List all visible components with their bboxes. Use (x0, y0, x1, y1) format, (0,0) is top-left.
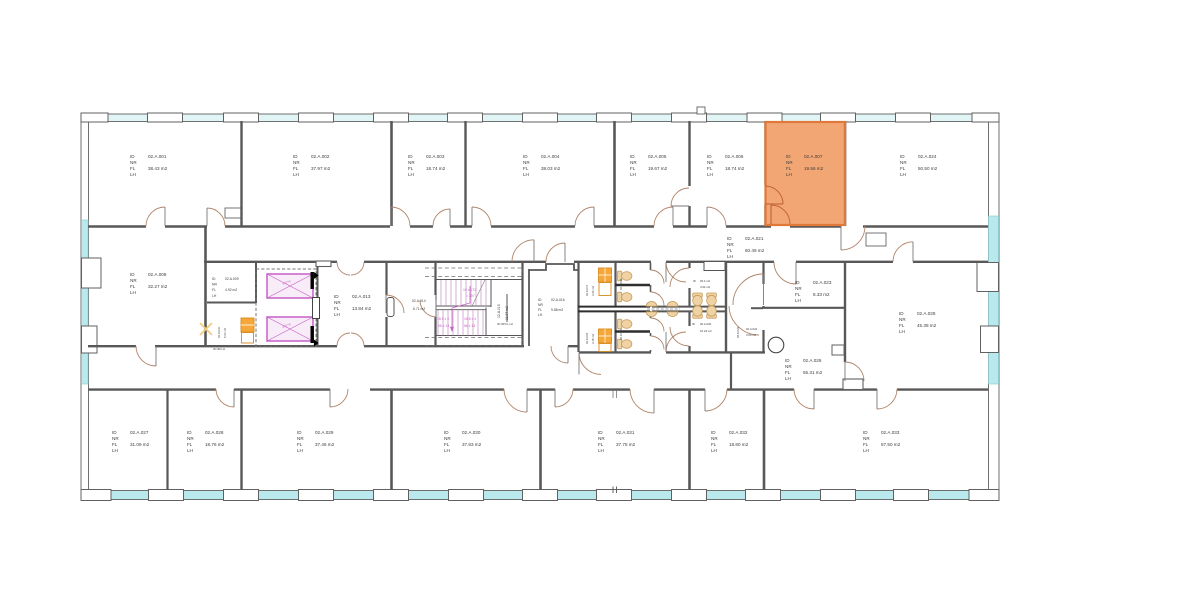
svg-text:19.67 m2: 19.67 m2 (648, 166, 668, 171)
svg-text:55.31 m2: 55.31 m2 (803, 370, 823, 375)
svg-text:03.4 m2: 03.4 m2 (700, 279, 711, 283)
svg-text:02.A.006: 02.A.006 (725, 154, 744, 159)
svg-text:NR: NR (786, 160, 793, 165)
svg-text:NR: NR (187, 436, 194, 441)
svg-text:02.A.026: 02.A.026 (803, 358, 822, 363)
svg-text:FL: FL (130, 166, 136, 171)
svg-text:18.76 m2: 18.76 m2 (205, 442, 225, 447)
svg-text:02.A.023: 02.A.023 (813, 280, 832, 285)
svg-text:NR: NR (112, 436, 119, 441)
svg-text:LH: LH (900, 172, 906, 177)
svg-text:FL: FL (408, 166, 414, 171)
svg-text:NR: NR (900, 160, 907, 165)
svg-text:ID: ID (297, 430, 302, 435)
svg-text:NR: NR (630, 160, 637, 165)
svg-text:18.5 x 4: 18.5 x 4 (437, 317, 449, 321)
svg-text:FL: FL (899, 323, 905, 328)
svg-text:FL: FL (130, 284, 136, 289)
svg-text:ID: ID (786, 154, 791, 159)
svg-text:LH: LH (444, 448, 450, 453)
svg-text:ID: ID (863, 430, 868, 435)
svg-text:LH: LH (598, 448, 604, 453)
svg-text:NR: NR (130, 278, 137, 283)
svg-text:02.A.007: 02.A.007 (804, 154, 823, 159)
svg-text:LH: LH (187, 448, 193, 453)
svg-text:10.23 m2: 10.23 m2 (700, 329, 712, 333)
svg-text:ID: ID (630, 154, 635, 159)
svg-text:ID: ID (900, 154, 905, 159)
svg-text:02.A.024: 02.A.024 (918, 154, 937, 159)
svg-text:ID: ID (523, 154, 528, 159)
svg-text:FL: FL (707, 166, 713, 171)
svg-text:02.A.005: 02.A.005 (648, 154, 667, 159)
svg-text:50.50 m2: 50.50 m2 (918, 166, 938, 171)
svg-text:LH: LH (408, 172, 414, 177)
svg-text:NR: NR (899, 317, 906, 322)
svg-text:ID: ID (711, 430, 716, 435)
svg-text:37.83 m2: 37.83 m2 (462, 442, 482, 447)
svg-text:02.A.022: 02.A.022 (736, 326, 740, 338)
svg-text:FL: FL (863, 442, 869, 447)
svg-text:ID: ID (899, 311, 904, 316)
svg-text:NR: NR (711, 436, 718, 441)
svg-text:LH: LH (727, 254, 733, 259)
svg-text:02.A.014: 02.A.014 (412, 299, 426, 303)
svg-text:LH: LH (863, 448, 869, 453)
svg-text:LH: LH (297, 448, 303, 453)
svg-text:ID: ID (727, 236, 732, 241)
svg-text:ID: ID (538, 298, 542, 302)
svg-text:ID: ID (130, 272, 135, 277)
svg-text:02.A.022: 02.A.022 (746, 327, 758, 331)
svg-text:ID: ID (130, 154, 135, 159)
svg-text:ID: ID (693, 279, 696, 283)
svg-text:18.74 m2: 18.74 m2 (426, 166, 446, 171)
svg-text:FL: FL (785, 370, 791, 375)
svg-text:FL: FL (444, 442, 450, 447)
svg-text:LH: LH (786, 172, 792, 177)
svg-text:LH: LH (293, 172, 299, 177)
svg-text:18.5 x 4: 18.5 x 4 (464, 317, 476, 321)
svg-text:02.A.001: 02.A.001 (148, 154, 167, 159)
svg-text:ID: ID (408, 154, 413, 159)
svg-text:18.74 m2: 18.74 m2 (725, 166, 745, 171)
svg-text:4.92 m2: 4.92 m2 (700, 285, 711, 289)
svg-text:NR: NR (707, 160, 714, 165)
svg-text:02.A.016: 02.A.016 (551, 298, 565, 302)
svg-text:LH: LH (212, 294, 217, 298)
svg-text:02.A.015: 02.A.015 (497, 304, 501, 318)
svg-text:02.A.002: 02.A.002 (311, 154, 330, 159)
svg-text:02.A.004: 02.A.004 (541, 154, 560, 159)
svg-text:ID: ID (334, 294, 339, 299)
svg-text:3.34 m2: 3.34 m2 (591, 285, 595, 296)
svg-text:FL: FL (598, 442, 604, 447)
svg-text:NR: NR (863, 436, 870, 441)
svg-text:37.97 m2: 37.97 m2 (311, 166, 331, 171)
svg-text:57.50 m2: 57.50 m2 (881, 442, 901, 447)
svg-text:02.A.020: 02.A.020 (700, 322, 712, 326)
svg-text:37.75 m2: 37.75 m2 (616, 442, 636, 447)
svg-text:8.33 m2: 8.33 m2 (813, 292, 830, 297)
svg-text:LH: LH (707, 172, 713, 177)
svg-text:FL: FL (786, 166, 792, 171)
svg-text:FL: FL (297, 442, 303, 447)
svg-text:NR: NR (727, 242, 734, 247)
svg-text:32.27 m2: 32.27 m2 (148, 284, 168, 289)
svg-text:FL: FL (630, 166, 636, 171)
svg-text:60.49 m2: 60.49 m2 (745, 248, 765, 253)
svg-text:9.88 m2: 9.88 m2 (551, 308, 563, 312)
svg-text:NR: NR (334, 300, 341, 305)
svg-text:LH: LH (630, 172, 636, 177)
svg-text:FL: FL (900, 166, 906, 171)
svg-text:ID: ID (212, 277, 216, 281)
svg-text:10 x 172: 10 x 172 (463, 288, 476, 292)
svg-text:18.80 m2: 18.80 m2 (729, 442, 749, 447)
svg-text:02.A.018: 02.A.018 (619, 278, 623, 290)
svg-text:NR: NR (293, 160, 300, 165)
svg-text:02.A.009: 02.A.009 (225, 277, 239, 281)
svg-text:37.46 m2: 37.46 m2 (315, 442, 335, 447)
svg-text:FL: FL (212, 288, 216, 292)
svg-text:56 x 13: 56 x 13 (438, 324, 449, 328)
svg-text:ID: ID (692, 322, 695, 326)
svg-text:LH: LH (130, 290, 136, 295)
svg-text:02.A.033: 02.A.033 (881, 430, 900, 435)
svg-text:45.38 m2: 45.38 m2 (917, 323, 937, 328)
svg-text:02.A.028: 02.A.028 (917, 311, 936, 316)
svg-text:ID NR LH: ID NR LH (213, 347, 225, 351)
svg-text:FL: FL (187, 442, 193, 447)
svg-text:02.A.028: 02.A.028 (205, 430, 224, 435)
svg-text:FL: FL (795, 292, 801, 297)
svg-text:NR: NR (795, 286, 802, 291)
svg-text:FL: FL (523, 166, 529, 171)
svg-text:FL: FL (727, 248, 733, 253)
svg-text:NR: NR (785, 364, 792, 369)
svg-text:LH: LH (112, 448, 118, 453)
svg-text:LH: LH (899, 329, 905, 334)
svg-text:LH: LH (795, 298, 801, 303)
svg-text:02.A.003: 02.A.003 (426, 154, 445, 159)
svg-text:ID: ID (707, 154, 712, 159)
svg-text:LH: LH (538, 313, 543, 317)
svg-text:NR: NR (538, 303, 543, 307)
svg-text:38.43 m2: 38.43 m2 (148, 166, 168, 171)
svg-text:ID NR FL LH: ID NR FL LH (497, 322, 513, 326)
svg-text:31.09 m2: 31.09 m2 (130, 442, 150, 447)
svg-text:LH: LH (523, 172, 529, 177)
svg-text:NR: NR (408, 160, 415, 165)
svg-text:02.A.031: 02.A.031 (616, 430, 635, 435)
svg-text:NR: NR (444, 436, 451, 441)
svg-text:02.A.029: 02.A.029 (315, 430, 334, 435)
svg-text:38.03 m2: 38.03 m2 (541, 166, 561, 171)
svg-text:LH: LH (711, 448, 717, 453)
svg-text:FL: FL (112, 442, 118, 447)
svg-text:FL: FL (293, 166, 299, 171)
svg-text:ID: ID (293, 154, 298, 159)
svg-text:ID: ID (444, 430, 449, 435)
svg-text:19.56 m2: 19.56 m2 (804, 166, 824, 171)
svg-text:02.A.013: 02.A.013 (352, 294, 371, 299)
svg-text:LH: LH (785, 376, 791, 381)
svg-text:86 x 13: 86 x 13 (464, 324, 475, 328)
svg-text:3.18 m2: 3.18 m2 (591, 333, 595, 344)
svg-text:02.A.010: 02.A.010 (217, 326, 221, 338)
svg-text:13.84 m2: 13.84 m2 (352, 306, 372, 311)
svg-text:NR: NR (297, 436, 304, 441)
svg-text:LH: LH (334, 312, 340, 317)
svg-text:11.97 m2: 11.97 m2 (505, 306, 509, 320)
svg-text:02.A.027: 02.A.027 (130, 430, 149, 435)
svg-text:ID: ID (785, 358, 790, 363)
svg-text:02.A.021: 02.A.021 (745, 236, 764, 241)
svg-text:02.A.021: 02.A.021 (619, 328, 623, 340)
svg-text:= 297: = 297 (466, 294, 475, 298)
svg-text:NR: NR (130, 160, 137, 165)
svg-text:02.A.032: 02.A.032 (729, 430, 748, 435)
svg-text:ID: ID (795, 280, 800, 285)
svg-text:5.03 m2: 5.03 m2 (223, 327, 227, 338)
svg-text:NR: NR (598, 436, 605, 441)
svg-text:ID: ID (598, 430, 603, 435)
svg-text:LH: LH (130, 172, 136, 177)
svg-text:NR: NR (212, 283, 217, 287)
svg-text:ID: ID (112, 430, 117, 435)
svg-text:FL: FL (334, 306, 340, 311)
svg-text:6.71 m2: 6.71 m2 (413, 307, 425, 311)
svg-text:ID: ID (187, 430, 192, 435)
svg-text:02.A.017: 02.A.017 (585, 284, 589, 296)
svg-text:FL: FL (538, 308, 542, 312)
svg-text:4.92 m2: 4.92 m2 (225, 288, 237, 292)
svg-text:NR: NR (523, 160, 530, 165)
svg-text:02.A.030: 02.A.030 (462, 430, 481, 435)
svg-text:3.60 m2: 3.60 m2 (746, 333, 757, 337)
svg-text:02.A.022: 02.A.022 (585, 332, 589, 344)
svg-text:02.A.008: 02.A.008 (148, 272, 167, 277)
svg-text:FL: FL (711, 442, 717, 447)
